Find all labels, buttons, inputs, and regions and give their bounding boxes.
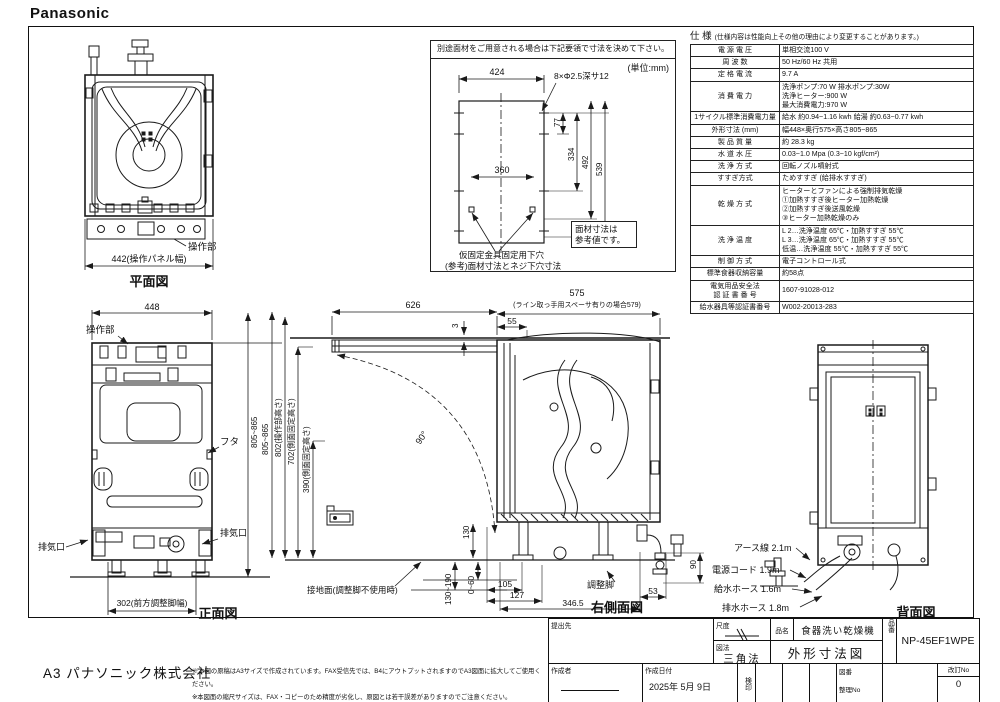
dim-346-5: 346.5 <box>562 598 584 608</box>
spec-row-value: 幅448×奥行575×高さ805~865 <box>780 124 974 136</box>
spec-row-value: 約 28.3 kg <box>780 136 974 148</box>
spec-row: 洗 浄 方 式 回転ノズル噴射式 <box>691 161 974 173</box>
side-height-dim: 805~865 <box>261 423 270 455</box>
spec-row-value: W002-20013-283 <box>780 302 974 314</box>
drain-hose-label: 排水ホース 1.8m <box>722 602 789 613</box>
dim-53: 53 <box>648 586 658 596</box>
spec-row-label: 1サイクル標準消費電力量 <box>691 112 780 124</box>
dim-334: 334 <box>567 147 576 161</box>
spec-row: 制 御 方 式 電子コントロール式 <box>691 256 974 268</box>
spec-row: 給水器具等認証書番号 W002-20013-283 <box>691 302 974 314</box>
drawing-title: 外形寸法図 <box>771 641 882 663</box>
drawing-number-label: 図番 <box>839 666 880 676</box>
dim-127: 127 <box>510 590 524 600</box>
dim-390: 390(側面固定高さ) <box>301 426 311 493</box>
front-width-dim: 448 <box>144 302 159 312</box>
dim-492: 492 <box>581 155 590 169</box>
plan-view-title: 平面図 <box>129 274 168 289</box>
date-cell: 作成日付 2025年 5月 9日 <box>643 664 738 702</box>
dim-626: 626 <box>405 300 420 310</box>
back-view-leaders <box>790 548 822 607</box>
spec-row: 周 波 数 50 Hz/60 Hz 共用 <box>691 57 974 69</box>
title-block-row2: 作成者 作成日付 2025年 5月 9日 検印 図番 整理No 改訂No 0 <box>549 663 979 702</box>
front-view-dimensions <box>66 310 248 615</box>
spec-row-value: 50 Hz/60 Hz 共用 <box>780 57 974 69</box>
revision-cell: 改訂No 0 <box>938 664 979 702</box>
spec-table: 仕 様(仕様内容は性能向上その他の理由により変更することがあります。) 電 源 … <box>690 28 974 314</box>
drawing-sheet: Panasonic <box>0 0 1000 702</box>
spec-row: 水 道 水 圧 0.03~1.0 Mpa (0.3~10 kgf/cm²) <box>691 148 974 160</box>
model-label: 品番 <box>883 619 897 663</box>
spec-row-value: 約58点 <box>780 268 974 280</box>
title-block: 提出先 尺度 図法 三角法 品名 <box>548 618 980 702</box>
dim-575: 575 <box>569 288 584 298</box>
spec-heading-note: (仕様内容は性能向上その他の理由により変更することがあります。) <box>715 34 919 41</box>
plan-control-label: 操作部 <box>188 241 217 253</box>
spec-row-value: 電子コントロール式 <box>780 256 974 268</box>
dim-575-note: (ライン取っ手用スペーサ有りの場合579) <box>513 300 641 309</box>
spec-row-label: 外形寸法 (mm) <box>691 124 780 136</box>
product-cell: 品名 食器洗い乾燥機 外形寸法図 <box>771 619 883 663</box>
spec-row-value: 9.7 A <box>780 69 974 81</box>
spec-row-label: 消 費 電 力 <box>691 81 780 112</box>
dim-3: 3 <box>451 323 460 328</box>
dim-0-60: 0~60 <box>467 575 476 594</box>
dim-424: 424 <box>489 67 504 77</box>
revision-value: 0 <box>938 677 979 690</box>
product-label: 品名 <box>771 619 794 640</box>
earth-wire-label: アース線 2.1m <box>734 542 792 553</box>
spec-row-value: 給水 約0.94~1.16 kwh 給湯 約0.63~0.77 kwh <box>780 112 974 124</box>
spec-row-label: 制 御 方 式 <box>691 256 780 268</box>
spec-heading-label: 仕 様 <box>690 31 712 42</box>
spec-row-label: 電 源 電 圧 <box>691 45 780 57</box>
spec-row: 電 源 電 圧 単相交流100 V <box>691 45 974 57</box>
front-vent-left-label: 排気口 <box>38 541 65 552</box>
spec-row-value: 洗浄ポンプ:70 W 排水ポンプ:30W 洗浄ヒーター:900 W 最大消費電力… <box>780 81 974 112</box>
date-value: 2025年 5月 9日 <box>649 680 711 693</box>
product-value: 食器洗い乾燥機 <box>794 619 882 640</box>
company-line: A3 パナソニック株式会社 <box>43 662 211 682</box>
stamp-box-3 <box>810 664 837 702</box>
spec-row-value: 1607-91028-012 <box>780 280 974 301</box>
spec-row-label: 周 波 数 <box>691 57 780 69</box>
pilot-hole-sublabel: (参考)面材寸法とネジ下穴寸法 <box>445 260 561 272</box>
stamp-cell: 検印 <box>738 664 756 702</box>
hole-note: 8×Φ2.5深サ12 <box>554 71 609 81</box>
stamp-label: 検印 <box>742 677 752 691</box>
spec-heading: 仕 様(仕様内容は性能向上その他の理由により変更することがあります。) <box>690 28 974 42</box>
footer-notes: ※本図の原稿はA3サイズで作成されています。FAX受信先では、B4にアウトプット… <box>192 666 544 702</box>
spec-row: 乾 燥 方 式 ヒーターとファンによる強制排気乾燥 ①加熱すすぎ後ヒーター加熱乾… <box>691 185 974 225</box>
spec-table-grid: 電 源 電 圧 単相交流100 V 周 波 数 50 Hz/60 Hz 共用 定… <box>690 44 974 314</box>
spec-row: 消 費 電 力 洗浄ポンプ:70 W 排水ポンプ:30W 洗浄ヒーター:900 … <box>691 81 974 112</box>
product-name-cell: 品名 食器洗い乾燥機 <box>771 619 882 641</box>
side-view-title: 右側面図 <box>590 600 643 615</box>
author-signature-line <box>561 690 619 691</box>
drawing-number-cell: 図番 整理No <box>837 664 883 702</box>
spec-row-label: 定 格 電 流 <box>691 69 780 81</box>
side-view: 626 575 (ライン取っ手用スペーサ有りの場合579) 55 3 90° 8… <box>255 285 723 630</box>
scale-cell: 尺度 <box>714 619 770 641</box>
dim-77: 77 <box>553 118 562 127</box>
spec-row-value: 回転ノズル噴射式 <box>780 161 974 173</box>
drawing-number-value-cell <box>883 664 938 702</box>
projection-label: 図法 <box>716 642 730 652</box>
destination-cell: 提出先 <box>549 619 714 663</box>
spec-row-label: すすぎ方式 <box>691 173 780 185</box>
dim-702: 702(側面固定高さ) <box>286 398 296 465</box>
stamp-box-1 <box>756 664 783 702</box>
ground-label: 接地面(調整脚不使用時) <box>307 585 398 595</box>
plan-view: 操作部 442(操作パネル幅) 平面図 <box>38 33 293 291</box>
dim-90: 90 <box>689 560 698 569</box>
dim-360: 360 <box>494 165 509 175</box>
spec-row-value: 単相交流100 V <box>780 45 974 57</box>
spec-row-label: 洗 浄 温 度 <box>691 225 780 256</box>
spec-row-label: 標準食器収納容量 <box>691 268 780 280</box>
adjust-foot-label: 調整脚 <box>587 579 614 590</box>
revision-label: 改訂No <box>938 664 979 677</box>
supply-hose-label: 給水ホース 1.6m <box>714 583 781 594</box>
spec-row-value: 0.03~1.0 Mpa (0.3~10 kgf/cm²) <box>780 148 974 160</box>
spec-row: すすぎ方式 ためすすぎ (給排水すすぎ) <box>691 173 974 185</box>
front-control-label: 操作部 <box>86 324 115 336</box>
date-label: 作成日付 <box>645 665 672 675</box>
spec-row-value: ヒーターとファンによる強制排気乾燥 ①加熱すすぎ後ヒーター加熱乾燥 ②加熱すすぎ… <box>780 185 974 225</box>
spec-row-label: 洗 浄 方 式 <box>691 161 780 173</box>
author-cell: 作成者 <box>549 664 643 702</box>
spec-row: 標準食器収納容量 約58点 <box>691 268 974 280</box>
destination-label: 提出先 <box>551 620 571 630</box>
model-value: NP-45EF1WPE <box>897 619 979 663</box>
spec-row-value: L 2…洗浄温度 65℃・加熱すすぎ 55℃ L 3…洗浄温度 65℃・加熱すす… <box>780 225 974 256</box>
side-view-drawing <box>285 333 683 590</box>
front-feet-dim: 302(前方調整脚幅) <box>117 598 188 608</box>
dim-802: 802(操作部高さ) <box>273 398 283 457</box>
spec-row-label: 乾 燥 方 式 <box>691 185 780 225</box>
front-lid-label: フタ <box>220 437 239 448</box>
spec-row: 外形寸法 (mm) 幅448×奥行575×高さ805~865 <box>691 124 974 136</box>
model-cell: 品番 NP-45EF1WPE <box>883 619 979 663</box>
spec-row-label: 製 品 質 量 <box>691 136 780 148</box>
dim-539: 539 <box>595 162 604 176</box>
back-view: アース線 2.1m 電源コード 1.9m 給水ホース 1.6m 排水ホース 1.… <box>700 330 990 630</box>
door-angle: 90° <box>413 429 429 446</box>
scale-projection-cell: 尺度 図法 三角法 <box>714 619 771 663</box>
plan-width-dim: 442(操作パネル幅) <box>111 253 186 264</box>
stamp-box-2 <box>783 664 810 702</box>
front-view-title: 正面図 <box>198 606 237 621</box>
panel-template-drawing: 424 8×Φ2.5深サ12 77 334 492 539 360 <box>431 41 675 271</box>
side-view-dimensions <box>272 312 704 611</box>
dim-55: 55 <box>507 316 517 326</box>
spec-row: 定 格 電 流 9.7 A <box>691 69 974 81</box>
reference-note: 面材寸法は 参考値です。 <box>571 221 637 248</box>
front-view-drawing <box>70 343 282 577</box>
filing-number-label: 整理No <box>839 684 880 694</box>
author-label: 作成者 <box>551 665 571 675</box>
plan-view-drawing <box>85 40 213 239</box>
dim-105: 105 <box>498 579 512 589</box>
spec-row-label: 水 道 水 圧 <box>691 148 780 160</box>
spec-row: 洗 浄 温 度 L 2…洗浄温度 65℃・加熱すすぎ 55℃ L 3…洗浄温度 … <box>691 225 974 256</box>
spec-row: 製 品 質 量 約 28.3 kg <box>691 136 974 148</box>
scale-label: 尺度 <box>716 620 730 630</box>
spec-row: 電気用品安全法 認 証 書 番 号 1607-91028-012 <box>691 280 974 301</box>
spec-row-value: ためすすぎ (給排水すすぎ) <box>780 173 974 185</box>
panel-template-box: 別途面材をご用意される場合は下記要領で寸法を決めて下さい。 (単位:mm) <box>430 40 676 272</box>
projection-cell: 図法 三角法 <box>714 641 770 663</box>
power-cord-label: 電源コード 1.9m <box>712 565 780 575</box>
dim-130: 130 <box>462 525 471 539</box>
dim-130-190: 130~190 <box>444 573 453 605</box>
spec-row: 1サイクル標準消費電力量 給水 約0.94~1.16 kwh 給湯 約0.63~… <box>691 112 974 124</box>
front-vent-right-label: 排気口 <box>220 527 247 538</box>
panasonic-logo: Panasonic <box>30 5 110 22</box>
front-view: 448 操作部 フタ 805~865 排気口 排気口 302(前方調整脚幅) 正… <box>30 300 292 630</box>
title-block-row1: 提出先 尺度 図法 三角法 品名 <box>549 619 979 663</box>
